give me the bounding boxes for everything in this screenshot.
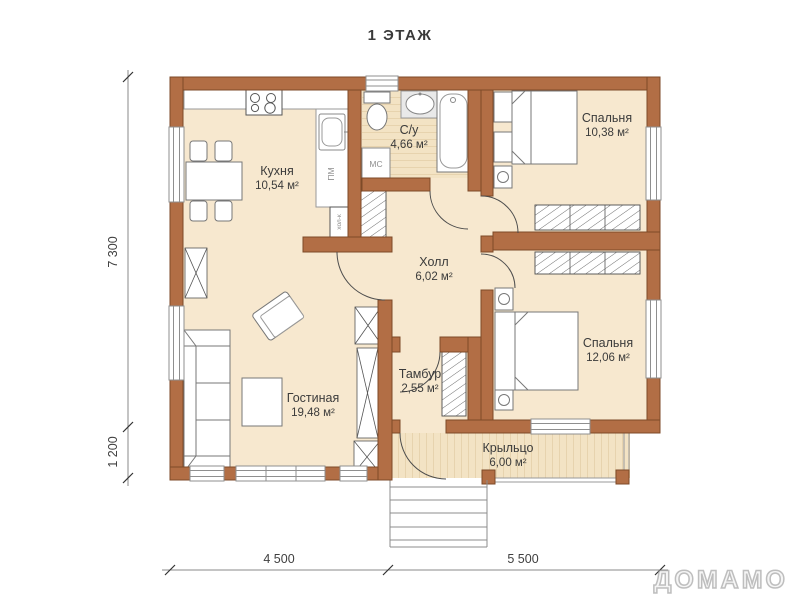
coffee-table — [242, 378, 282, 426]
room-label-bathroom: С/у 4,66 м² — [390, 123, 427, 153]
room-area: 6,00 м² — [483, 456, 534, 471]
room-label-kitchen: Кухня 10,54 м² — [255, 164, 299, 194]
room-area: 10,38 м² — [582, 126, 632, 141]
sofa — [184, 330, 230, 472]
room-area: 19,48 м² — [287, 406, 339, 421]
room-area: 4,66 м² — [390, 138, 427, 153]
kitchen-stove — [246, 90, 282, 115]
room-area: 12,06 м² — [583, 351, 633, 366]
window-bedroom-2-bottom — [531, 419, 590, 434]
bathroom-sink — [401, 91, 439, 118]
room-area: 10,54 м² — [255, 179, 299, 194]
room-name: Крыльцо — [483, 441, 534, 456]
dim-bottom-left: 4 500 — [263, 552, 294, 566]
dim-left-lower: 1 200 — [106, 436, 120, 467]
room-label-bedroom-1: Спальня 10,38 м² — [582, 111, 632, 141]
room-label-vestibule: Тамбур 2,55 м² — [399, 367, 441, 397]
room-name: Кухня — [255, 164, 299, 179]
window-bedroom-2-right — [646, 300, 661, 378]
dim-left-total: 7 300 — [106, 236, 120, 267]
dim-bottom-right: 5 500 — [507, 552, 538, 566]
floor-plan-page: 1 ЭТАЖ ДОМАМО — [0, 0, 800, 600]
bathtub — [437, 90, 470, 172]
wardrobe-vestibule — [442, 352, 466, 416]
window-living-bottom-1 — [190, 466, 224, 481]
window-bathroom-top — [366, 76, 398, 91]
window-living-bottom-2 — [236, 466, 325, 481]
room-label-porch: Крыльцо 6,00 м² — [483, 441, 534, 471]
dishwasher-label: ПМ — [326, 167, 336, 180]
wardrobe-bedroom-1 — [535, 205, 640, 230]
window-living-bottom-3 — [340, 466, 367, 481]
window-kitchen-left — [169, 127, 184, 202]
wardrobe-hall — [361, 190, 386, 237]
window-living-left — [169, 306, 184, 380]
room-area: 6,02 м² — [415, 270, 452, 285]
room-name: Спальня — [583, 336, 633, 351]
porch-post — [482, 470, 495, 484]
room-name: Тамбур — [399, 367, 441, 382]
wardrobe-bedroom-2 — [535, 252, 640, 274]
room-name: С/у — [390, 123, 427, 138]
floor-plan-drawing: ПМ хол-к МС — [0, 0, 800, 600]
fridge-label: хол-к — [336, 214, 343, 230]
room-label-living-room: Гостиная 19,48 м² — [287, 391, 339, 421]
nightstand-bedroom-1 — [494, 166, 512, 188]
room-name: Гостиная — [287, 391, 339, 406]
room-name: Холл — [415, 255, 452, 270]
watermark-corner: ДОМАМО — [654, 566, 788, 595]
room-label-bedroom-2: Спальня 12,06 м² — [583, 336, 633, 366]
room-name: Спальня — [582, 111, 632, 126]
kitchen-sink — [319, 114, 349, 150]
window-bedroom-1-right — [646, 127, 661, 200]
washing-machine-label: МС — [369, 159, 382, 169]
room-label-hall: Холл 6,02 м² — [415, 255, 452, 285]
porch-stairs — [390, 480, 487, 547]
porch-post — [616, 470, 629, 484]
room-area: 2,55 м² — [399, 382, 441, 397]
